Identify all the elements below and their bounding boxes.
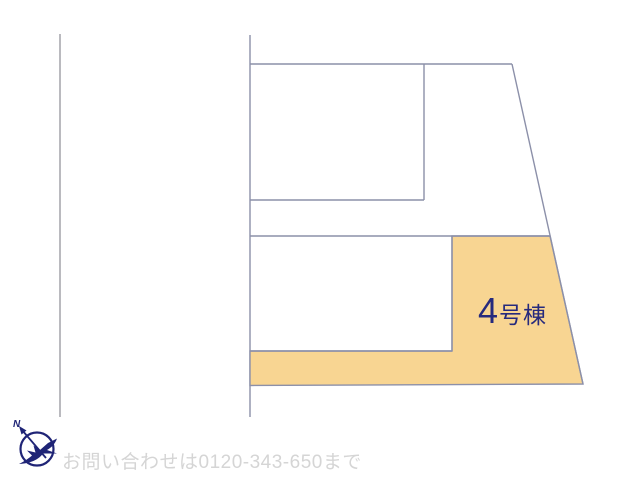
north-label: N bbox=[13, 419, 21, 430]
parcel-4-label: 4 号棟 bbox=[478, 293, 547, 329]
parcel-4-number: 4 bbox=[478, 293, 499, 329]
contact-phone-text: お問い合わせは0120-343-650まで bbox=[62, 447, 362, 474]
site-plan-canvas: 4 号棟 N お問い合わせは0120-343-650まで bbox=[0, 0, 640, 480]
site-plan-drawing bbox=[0, 0, 640, 480]
parcel-4-suffix: 号棟 bbox=[499, 304, 547, 327]
compass-logo: N bbox=[12, 417, 64, 475]
